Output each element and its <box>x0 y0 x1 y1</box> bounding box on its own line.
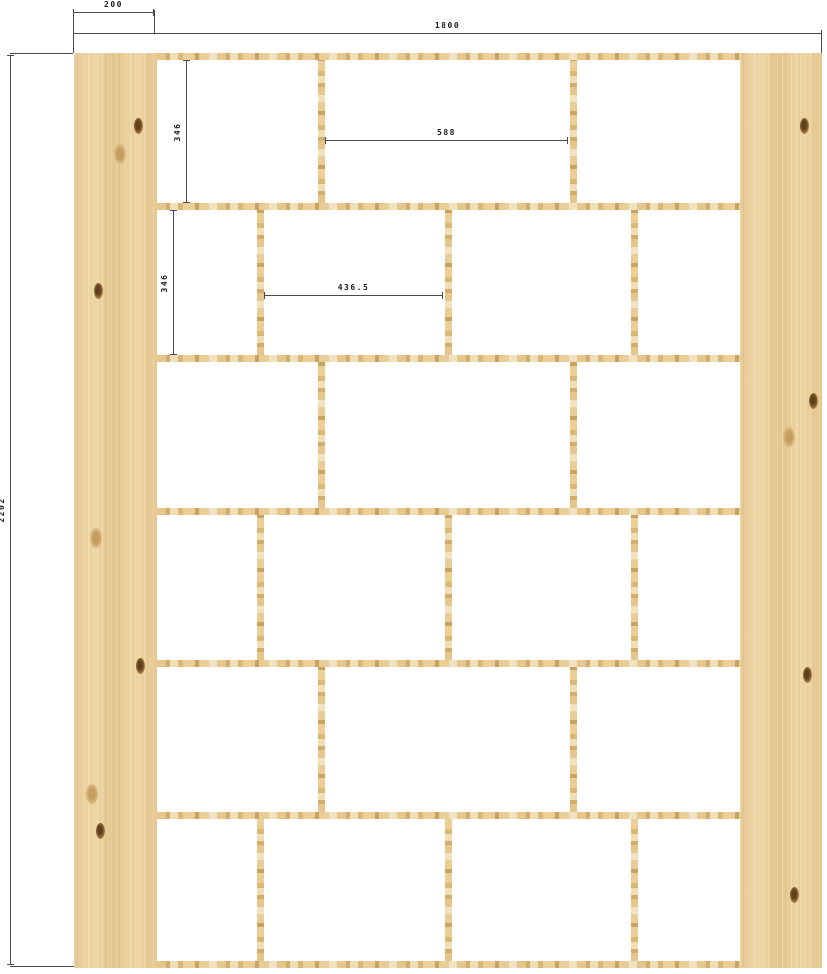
wood-knot <box>803 667 812 683</box>
shelf <box>157 508 740 515</box>
dim-row1-cell-width: 588 <box>325 140 568 141</box>
wood-knot <box>94 283 103 299</box>
dim-total-height: 2202 <box>10 55 11 965</box>
divider <box>318 362 325 508</box>
wood-knot <box>790 887 799 903</box>
shelf <box>157 53 740 60</box>
shelf <box>157 203 740 210</box>
left-side-panel <box>74 53 157 968</box>
shelf <box>157 660 740 667</box>
wood-knot <box>114 144 126 164</box>
shelf <box>157 355 740 362</box>
wood-knot <box>809 393 818 409</box>
divider <box>631 819 638 961</box>
dim-row2-height-label: 346 <box>161 273 169 292</box>
extension-line <box>10 53 73 54</box>
wood-knot <box>134 118 143 134</box>
dim-row2-height: 346 <box>173 210 174 355</box>
divider <box>445 210 452 355</box>
wood-knot <box>86 784 98 804</box>
drawing-canvas: 200 1800 2202 346 588 346 436.5 <box>0 0 827 974</box>
dim-total-width: 1800 <box>73 33 822 34</box>
dim-panel-width-label: 200 <box>104 1 123 9</box>
wood-knot <box>136 658 145 674</box>
extension-line <box>10 966 74 967</box>
wood-knot <box>800 118 809 134</box>
shelf <box>157 961 740 968</box>
dim-panel-width: 200 <box>73 12 154 13</box>
divider <box>445 819 452 961</box>
divider <box>257 515 264 660</box>
wood-knot <box>783 427 795 447</box>
extension-line <box>154 10 155 33</box>
divider <box>631 210 638 355</box>
right-side-panel <box>740 53 822 968</box>
wood-knot <box>96 823 105 839</box>
dim-total-width-label: 1800 <box>435 22 460 30</box>
dim-row2-cell-width-label: 436.5 <box>338 284 370 292</box>
shelf <box>157 812 740 819</box>
divider <box>257 819 264 961</box>
divider <box>318 667 325 812</box>
divider <box>318 60 325 203</box>
divider <box>570 667 577 812</box>
divider <box>570 60 577 203</box>
dim-total-height-label: 2202 <box>0 497 6 522</box>
dim-row1-height: 346 <box>186 60 187 203</box>
divider <box>257 210 264 355</box>
dim-row2-cell-width: 436.5 <box>264 295 443 296</box>
wood-knot <box>90 528 102 548</box>
divider <box>445 515 452 660</box>
dim-row1-height-label: 346 <box>174 122 182 141</box>
divider <box>631 515 638 660</box>
dim-row1-cell-width-label: 588 <box>437 129 456 137</box>
divider <box>570 362 577 508</box>
